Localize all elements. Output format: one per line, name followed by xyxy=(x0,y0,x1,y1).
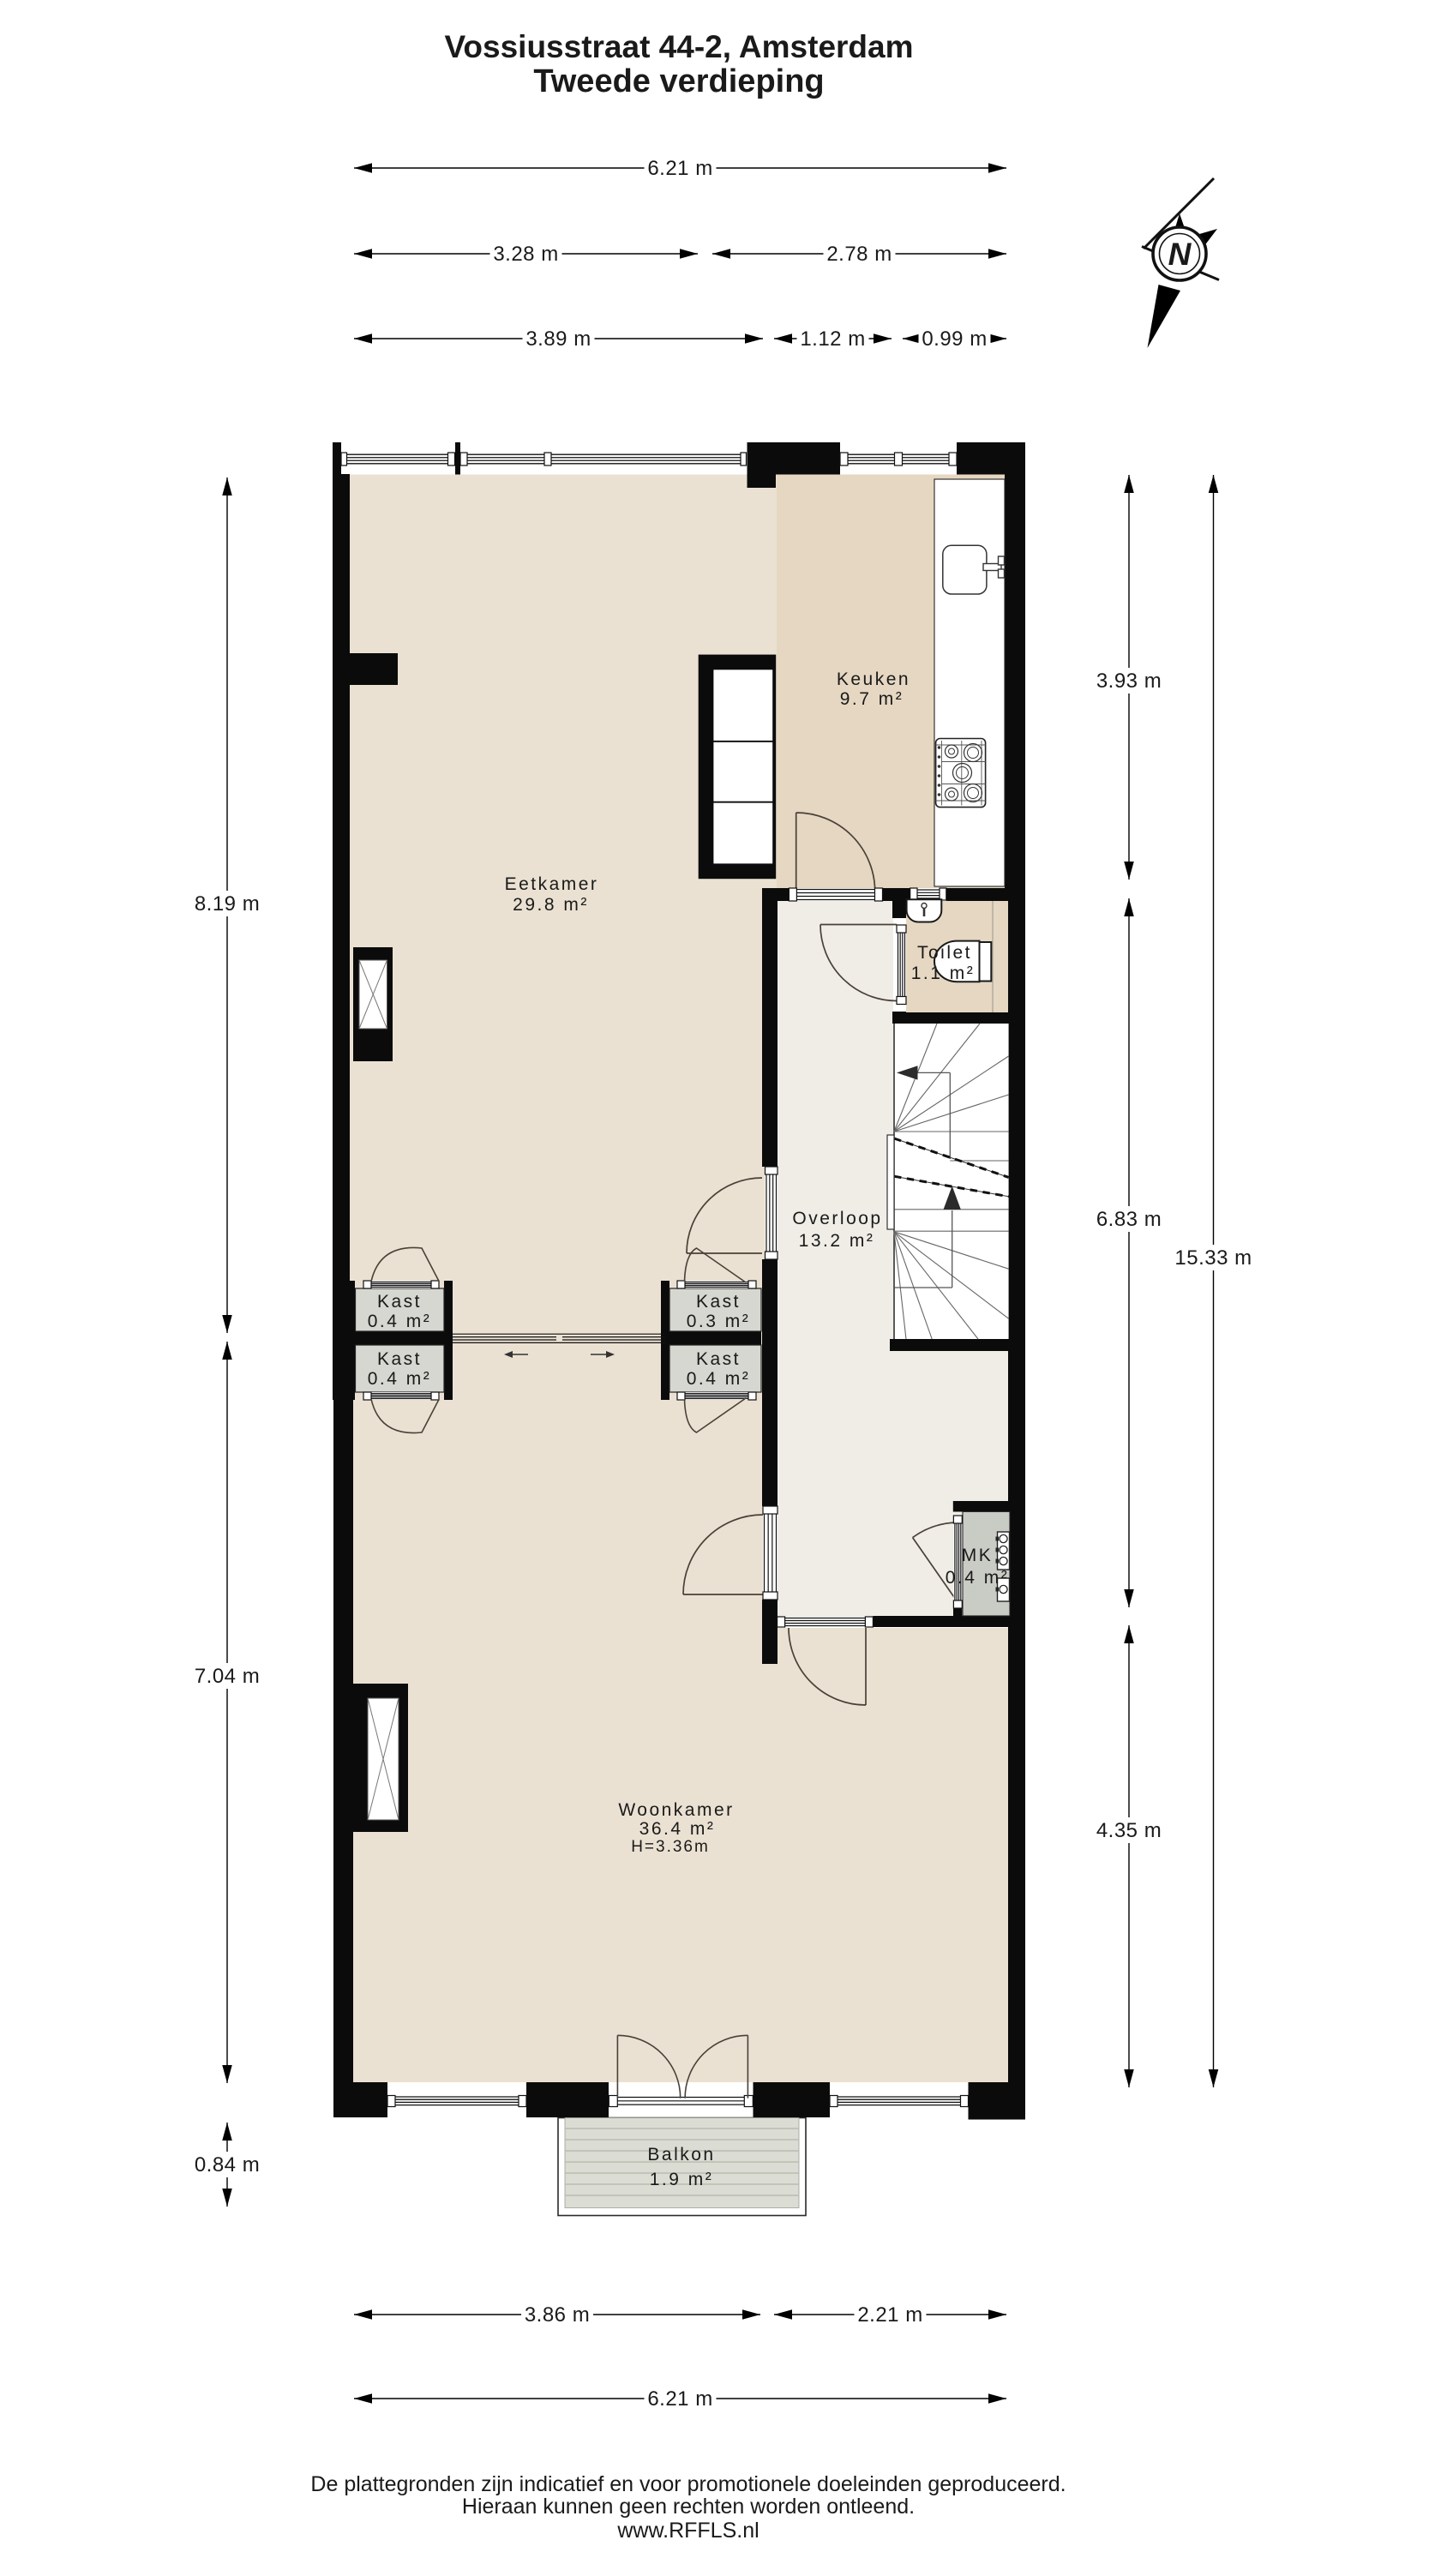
svg-text:3.28 m: 3.28 m xyxy=(493,243,558,266)
svg-text:Eetkamer: Eetkamer xyxy=(505,874,599,894)
svg-text:H=3.36m: H=3.36m xyxy=(631,1838,710,1856)
svg-text:3.93 m: 3.93 m xyxy=(1096,670,1162,693)
svg-text:2.78 m: 2.78 m xyxy=(826,243,892,266)
svg-text:0.4 m²: 0.4 m² xyxy=(368,1369,432,1389)
svg-text:7.04 m: 7.04 m xyxy=(195,1665,260,1688)
svg-text:8.19 m: 8.19 m xyxy=(195,892,260,916)
svg-text:15.33 m: 15.33 m xyxy=(1174,1246,1252,1270)
svg-text:1.1 m²: 1.1 m² xyxy=(911,964,976,983)
svg-text:N: N xyxy=(1168,237,1192,272)
svg-text:Kast: Kast xyxy=(696,1349,741,1369)
svg-text:Tweede verdieping: Tweede verdieping xyxy=(533,63,824,99)
svg-text:0.4 m²: 0.4 m² xyxy=(687,1369,751,1389)
svg-text:De plattegronden zijn indicati: De plattegronden zijn indicatief en voor… xyxy=(310,2472,1066,2496)
svg-text:0.99 m: 0.99 m xyxy=(922,327,987,351)
svg-text:Overloop: Overloop xyxy=(792,1209,882,1228)
svg-text:1.9 m²: 1.9 m² xyxy=(650,2170,714,2189)
svg-text:Woonkamer: Woonkamer xyxy=(618,1800,734,1820)
svg-text:Kast: Kast xyxy=(377,1292,422,1312)
svg-text:Balkon: Balkon xyxy=(647,2145,715,2165)
svg-text:1.12 m: 1.12 m xyxy=(800,327,865,351)
svg-text:2.21 m: 2.21 m xyxy=(857,2303,922,2327)
svg-text:0.4 m²: 0.4 m² xyxy=(946,1568,1010,1588)
svg-text:3.89 m: 3.89 m xyxy=(525,327,591,351)
svg-text:13.2 m²: 13.2 m² xyxy=(799,1231,875,1251)
svg-text:MK: MK xyxy=(962,1546,994,1565)
svg-text:6.21 m: 6.21 m xyxy=(647,157,712,180)
svg-text:6.21 m: 6.21 m xyxy=(647,2387,712,2411)
svg-text:0.84 m: 0.84 m xyxy=(195,2153,260,2177)
svg-text:3.86 m: 3.86 m xyxy=(525,2303,590,2327)
svg-text:36.4 m²: 36.4 m² xyxy=(639,1819,716,1839)
svg-text:Vossiusstraat 44-2, Amsterdam: Vossiusstraat 44-2, Amsterdam xyxy=(444,29,913,64)
svg-text:Keuken: Keuken xyxy=(837,670,910,689)
svg-text:Hieraan kunnen geen rechten wo: Hieraan kunnen geen rechten worden ontle… xyxy=(462,2495,915,2519)
svg-text:Toilet: Toilet xyxy=(917,943,972,963)
svg-text:9.7 m²: 9.7 m² xyxy=(840,689,904,709)
svg-text:6.83 m: 6.83 m xyxy=(1096,1208,1162,1231)
svg-text:0.3 m²: 0.3 m² xyxy=(687,1312,751,1331)
svg-text:0.4 m²: 0.4 m² xyxy=(368,1312,432,1331)
svg-text:4.35 m: 4.35 m xyxy=(1096,1819,1162,1842)
svg-text:Kast: Kast xyxy=(696,1292,741,1312)
svg-text:www.RFFLS.nl: www.RFFLS.nl xyxy=(616,2519,759,2543)
svg-text:Kast: Kast xyxy=(377,1349,422,1369)
svg-text:29.8 m²: 29.8 m² xyxy=(513,895,589,915)
